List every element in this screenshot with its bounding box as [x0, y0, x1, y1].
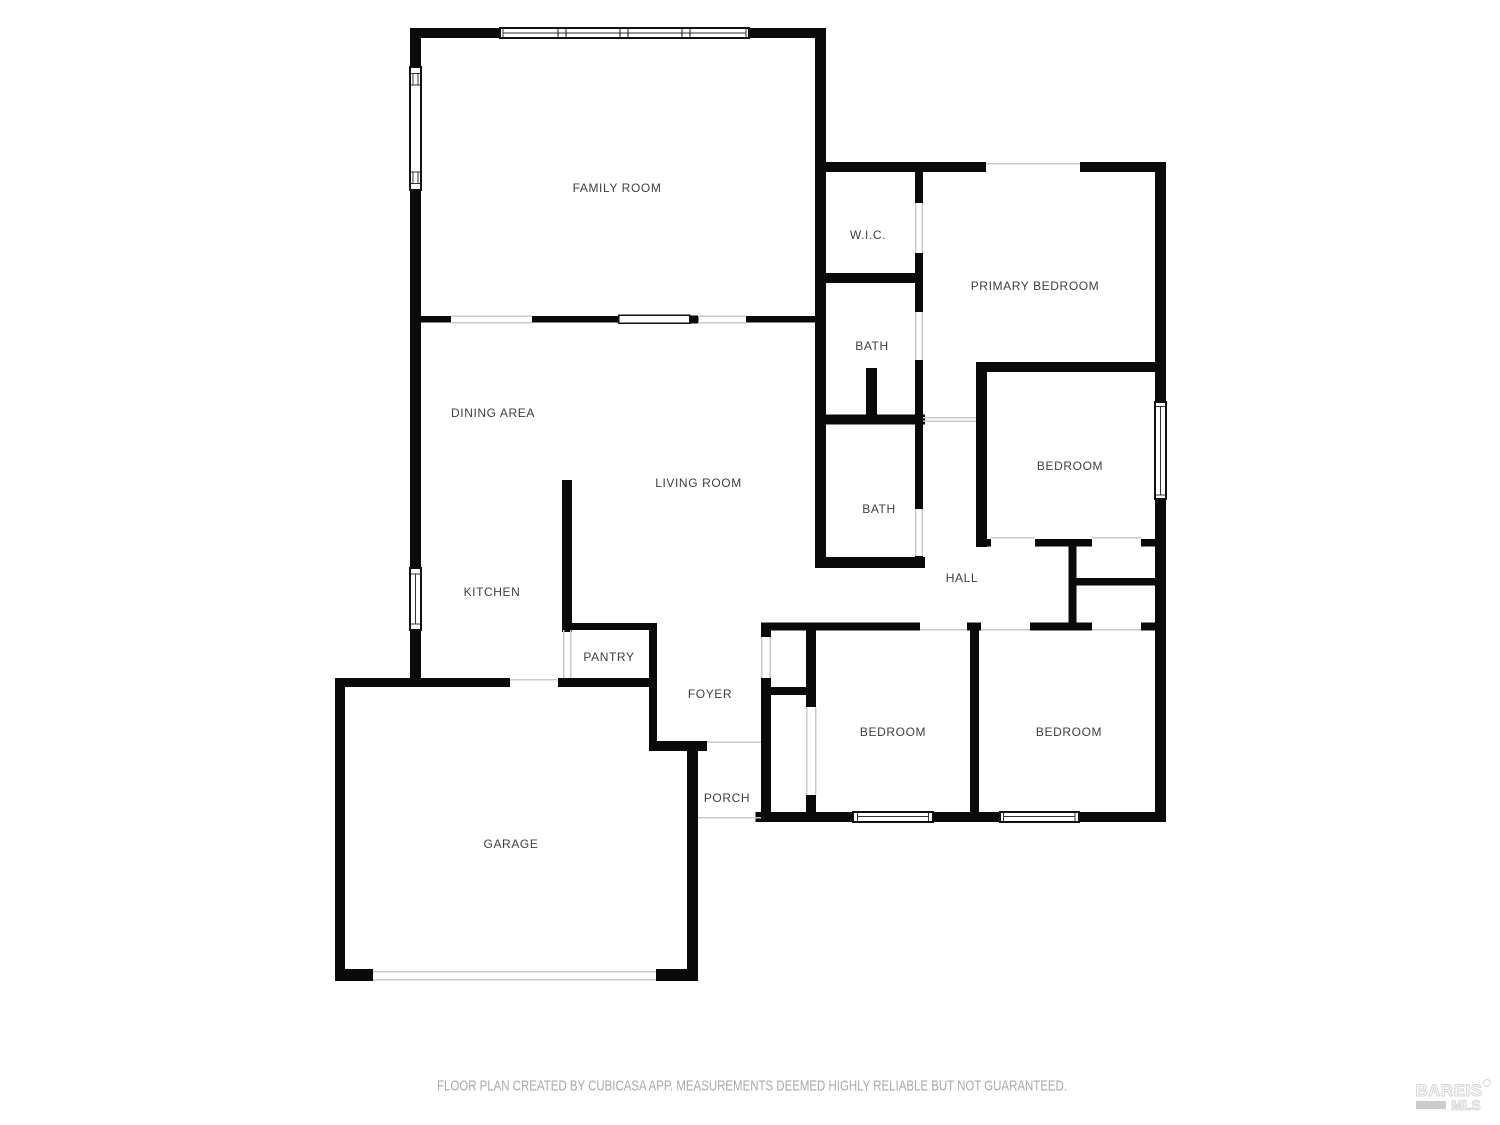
svg-text:BEDROOM: BEDROOM [860, 725, 926, 739]
svg-text:HALL: HALL [946, 571, 978, 585]
svg-text:MLS: MLS [1451, 1097, 1481, 1113]
svg-text:PANTRY: PANTRY [583, 650, 634, 664]
svg-text:FAMILY ROOM: FAMILY ROOM [573, 181, 662, 195]
svg-text:PRIMARY BEDROOM: PRIMARY BEDROOM [971, 279, 1100, 293]
svg-text:BEDROOM: BEDROOM [1036, 725, 1102, 739]
svg-text:FOYER: FOYER [688, 687, 732, 701]
svg-text:GARAGE: GARAGE [484, 837, 539, 851]
svg-text:FLOOR PLAN CREATED BY CUBICASA: FLOOR PLAN CREATED BY CUBICASA APP. MEAS… [437, 1079, 1067, 1095]
svg-text:KITCHEN: KITCHEN [464, 585, 521, 599]
svg-text:BATH: BATH [855, 339, 889, 353]
svg-text:PORCH: PORCH [704, 791, 750, 805]
svg-text:W.I.C.: W.I.C. [850, 228, 886, 242]
svg-text:BATH: BATH [862, 502, 896, 516]
svg-text:BEDROOM: BEDROOM [1037, 459, 1103, 473]
svg-text:DINING AREA: DINING AREA [451, 406, 535, 420]
svg-text:LIVING ROOM: LIVING ROOM [655, 476, 742, 490]
